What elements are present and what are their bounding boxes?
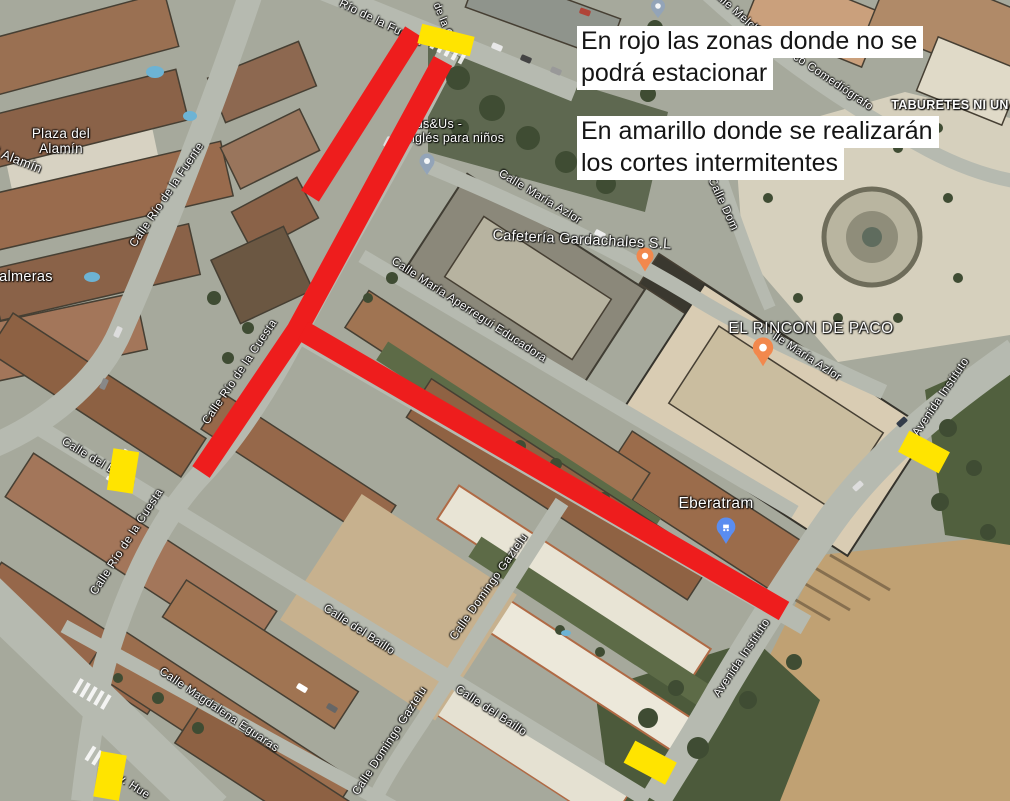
yellow-cuts-note: En amarillo donde se realizarán los cort…: [577, 116, 939, 180]
red-note-line1: En rojo las zonas donde no se: [577, 26, 923, 58]
yellow-note-line1: En amarillo donde se realizarán: [577, 116, 939, 148]
red-zones-note: En rojo las zonas donde no se podrá esta…: [577, 26, 923, 90]
no-parking-line-west: [201, 61, 443, 472]
cut-marker-bottom-left: [93, 751, 127, 801]
cut-marker-left: [107, 448, 139, 494]
cut-marker-bottom-right: [624, 741, 677, 785]
cut-marker-right: [898, 431, 950, 474]
yellow-note-line2: los cortes intermitentes: [577, 148, 844, 180]
no-parking-line-short: [310, 32, 414, 196]
cut-marker-top: [417, 24, 474, 56]
map-canvas: Río de la Fuente de la C Calle Melch co …: [0, 0, 1010, 801]
no-parking-line-diagonal: [303, 331, 784, 611]
red-note-line2: podrá estacionar: [577, 58, 773, 90]
